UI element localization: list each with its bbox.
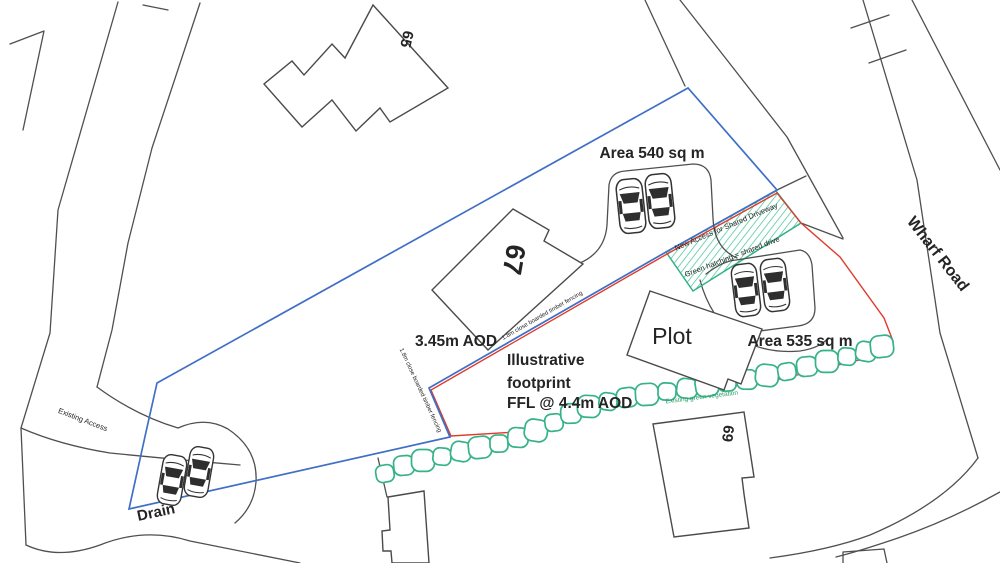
label-footprint-line1: Illustrative <box>507 352 585 369</box>
hedge-bush <box>412 450 435 472</box>
car-icon <box>156 453 188 506</box>
building-67 <box>432 209 583 350</box>
car-icon <box>615 178 647 234</box>
label-existing-access: Existing Access <box>57 406 109 433</box>
label-plot: Plot <box>652 323 692 349</box>
label-house-69: 69 <box>718 424 737 443</box>
car-icon <box>644 173 676 229</box>
building-69 <box>653 412 754 537</box>
label-drain: Drain <box>136 500 177 525</box>
hedge-bush <box>754 363 779 387</box>
hedge-bush <box>375 464 396 484</box>
site-plan-drawing: 65 67 69 Plot Area 540 sq m Area 535 sq … <box>0 0 1000 563</box>
road-top-connector <box>143 5 168 10</box>
label-area-south: Area 535 sq m <box>747 333 852 350</box>
corner-outbuilding <box>843 549 887 563</box>
site-plan-page: 65 67 69 Plot Area 540 sq m Area 535 sq … <box>0 0 1000 563</box>
road-west-edge <box>21 2 118 545</box>
hedge-bush <box>816 351 839 373</box>
car-icon <box>759 257 790 312</box>
hedge-bush <box>777 362 798 382</box>
building-bottom <box>382 491 429 563</box>
plot65-east-boundary <box>645 0 685 86</box>
label-wharf-road: Wharf Road <box>903 214 972 295</box>
hedge-bush <box>432 447 451 466</box>
road-bottom-bend-upper <box>770 458 978 558</box>
label-area-north: Area 540 sq m <box>599 145 704 162</box>
label-level-aod: 3.45m AOD <box>415 333 497 350</box>
label-footprint-line2: footprint <box>507 375 571 392</box>
hedge-bush <box>490 435 508 452</box>
label-house-67: 67 <box>496 242 531 277</box>
hedge-bush <box>869 334 894 358</box>
label-fence-west: 1.8m close boarded timber fencing <box>398 348 442 434</box>
hedge-bush <box>635 383 659 406</box>
junction-flare-north <box>777 176 806 190</box>
hedge-bush <box>467 435 492 459</box>
road-tick-1 <box>851 15 889 28</box>
building-65 <box>264 5 448 131</box>
hedge-bush <box>837 347 856 366</box>
label-ffl: FFL @ 4.4m AOD <box>507 395 632 412</box>
wharf-road-far-edge <box>912 0 1000 170</box>
car-icon <box>730 262 761 317</box>
road-bottom-bend-lower <box>836 492 1000 557</box>
road-top-left-corner <box>10 31 44 130</box>
road-second-edge <box>97 3 200 387</box>
road-tick-2 <box>869 50 906 63</box>
road-bottom-left-curve <box>26 535 300 563</box>
